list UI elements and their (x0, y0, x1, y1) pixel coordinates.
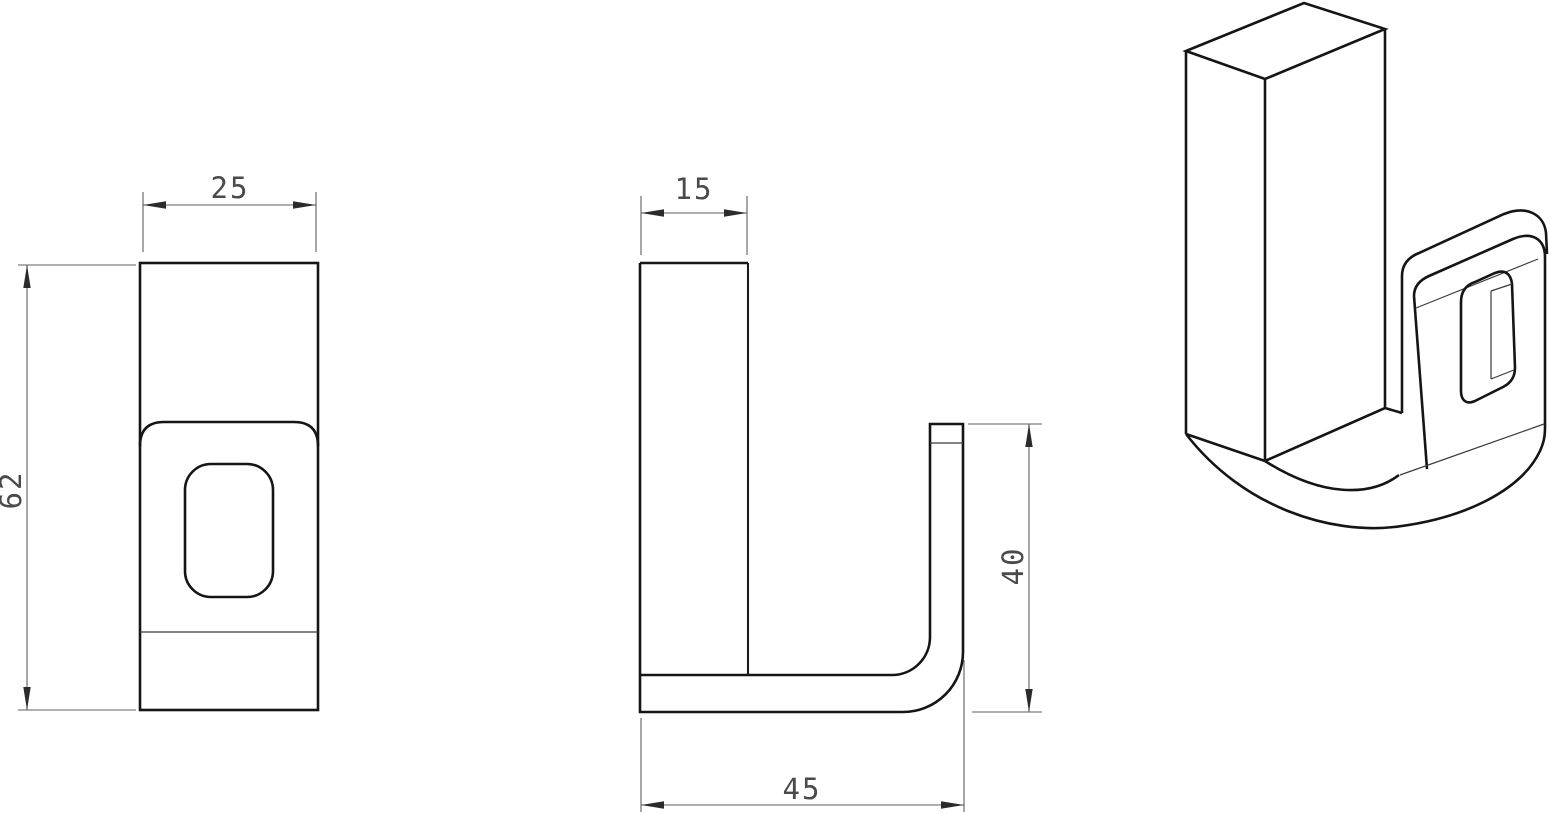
dim-label-front-height: 62 (0, 471, 28, 510)
iso-floor-back-edge (1265, 408, 1402, 461)
side-view (640, 263, 963, 712)
isometric-view (1186, 3, 1547, 528)
front-view (140, 263, 318, 710)
extension-lines (18, 265, 136, 710)
front-view-outline (140, 263, 318, 710)
side-view-outline (640, 263, 963, 712)
iso-lip-top-tangent-line (1416, 259, 1538, 308)
arrow-right (941, 801, 964, 808)
technical-drawing-page: 25 62 15 40 45 (0, 0, 1550, 813)
drawing-svg (0, 0, 1550, 813)
iso-column-top-face (1186, 3, 1385, 79)
iso-slot-hole-inner-edges (1491, 284, 1514, 379)
iso-lip-bottom-tangent-line (1400, 424, 1544, 475)
arrow-bottom (23, 687, 30, 710)
arrow-left (641, 801, 664, 808)
arrow-bottom (1025, 689, 1032, 712)
front-view-slot-hole (185, 464, 273, 597)
front-view-hook-top-edge (140, 422, 318, 446)
dim-label-hook-height: 40 (996, 547, 1030, 586)
iso-lip-back-top-edge (1402, 210, 1547, 276)
iso-lip-front-left-edge (1414, 296, 1427, 469)
dim-label-side-width: 15 (675, 172, 714, 206)
arrow-top (1025, 424, 1032, 447)
arrow-right (293, 201, 316, 208)
arrow-right (724, 209, 747, 216)
arrow-left (143, 201, 166, 208)
iso-slot-hole-outline (1461, 272, 1515, 403)
dimension-front-height (18, 265, 136, 710)
arrow-top (23, 265, 30, 288)
arrow-left (641, 209, 664, 216)
dim-label-front-width: 25 (211, 171, 250, 205)
dimensions (18, 192, 1042, 812)
iso-inner-bend-curve (1265, 461, 1399, 490)
dim-label-base-length: 45 (783, 772, 822, 806)
